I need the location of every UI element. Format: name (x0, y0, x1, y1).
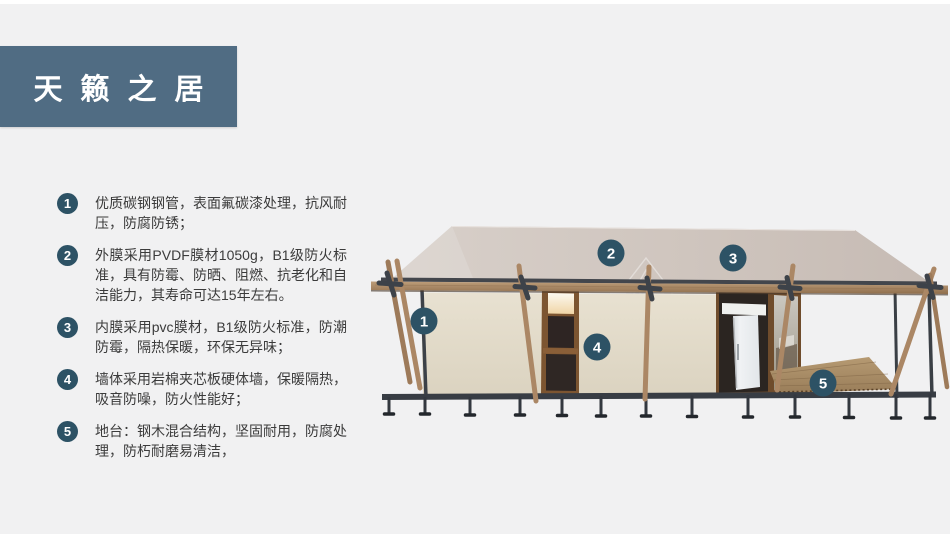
slide-page: 天籁之居 1 优质碳钢钢管，表面氟碳漆处理，抗风耐压，防腐防锈； 2 外膜采用P… (0, 0, 950, 534)
feature-item-3: 3 内膜采用pvc膜材，B1级防火标准，防潮防霉，隔热保暖，环保无异味； (57, 317, 357, 357)
svg-text:5: 5 (819, 376, 827, 393)
title-box: 天籁之居 (0, 46, 237, 127)
top-white-strip (0, 0, 950, 4)
feature-number-badge: 3 (57, 317, 78, 338)
leg-feet (385, 414, 935, 418)
feature-item-1: 1 优质碳钢钢管，表面氟碳漆处理，抗风耐压，防腐防锈； (57, 193, 357, 233)
glass-door-section (716, 289, 771, 396)
feature-text: 内膜采用pvc膜材，B1级防火标准，防潮防霉，隔热保暖，环保无异味； (95, 317, 347, 357)
feature-item-5: 5 地台：钢木混合结构，坚固耐用，防腐处理，防朽耐磨易清洁， (57, 421, 357, 461)
feature-text: 地台：钢木混合结构，坚固耐用，防腐处理，防朽耐磨易清洁， (95, 421, 347, 461)
diagram-badge-3: 3 (720, 245, 747, 272)
diagram-badge-5: 5 (810, 370, 837, 397)
porch-corner-post (929, 289, 932, 397)
feature-text: 外膜采用PVDF膜材1050g，B1级防火标准，具有防霉、防晒、阻燃、抗老化和自… (95, 245, 347, 305)
svg-text:4: 4 (593, 340, 602, 357)
feature-text: 墙体采用岩棉夹芯板硬体墙，保暖隔热，吸音防噪，防火性能好； (95, 369, 347, 409)
feature-item-2: 2 外膜采用PVDF膜材1050g，B1级防火标准，具有防霉、防晒、阻燃、抗老化… (57, 245, 357, 305)
entry-door (541, 289, 579, 395)
feature-number-badge: 2 (57, 245, 78, 266)
feature-number-badge: 4 (57, 369, 78, 390)
diagram-badge-1: 1 (411, 308, 438, 335)
svg-text:3: 3 (729, 251, 737, 268)
svg-text:1: 1 (420, 314, 428, 331)
feature-text: 优质碳钢钢管，表面氟碳漆处理，抗风耐压，防腐防锈； (95, 193, 347, 233)
page-title: 天籁之居 (15, 66, 221, 108)
diagram-badge-2: 2 (598, 240, 625, 267)
svg-text:2: 2 (607, 246, 615, 263)
feature-item-4: 4 墙体采用岩棉夹芯板硬体墙，保暖隔热，吸音防噪，防火性能好； (57, 369, 357, 409)
tent-diagram: 雪利篷房 XUELI TENT (368, 205, 950, 435)
feature-number-badge: 1 (57, 193, 78, 214)
feature-number-badge: 5 (57, 421, 78, 442)
feature-list: 1 优质碳钢钢管，表面氟碳漆处理，抗风耐压，防腐防锈； 2 外膜采用PVDF膜材… (57, 193, 357, 473)
diagram-badge-4: 4 (584, 334, 611, 361)
